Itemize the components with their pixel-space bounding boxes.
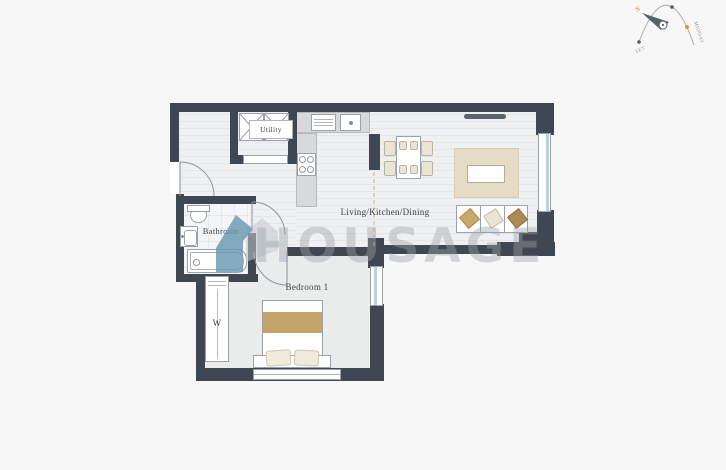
burner-icon <box>299 166 306 173</box>
washbasin <box>180 226 198 247</box>
sink-drainer <box>311 114 336 131</box>
north-label: N <box>633 5 643 15</box>
floorplan-canvas: Utility <box>0 0 726 470</box>
seat-cushion <box>410 165 418 174</box>
burner-icon <box>299 156 306 163</box>
dining-table <box>396 136 421 179</box>
dining-chair <box>421 161 433 176</box>
coffee-table <box>467 165 505 183</box>
wall-top <box>170 103 554 112</box>
utility-door <box>243 155 288 164</box>
headboard <box>253 355 331 368</box>
burner-icon <box>307 156 314 163</box>
sun-dot <box>637 40 641 44</box>
utility-label: Utility <box>260 125 282 134</box>
seat-cushion <box>399 141 407 150</box>
wall-bedroom-left <box>196 278 205 370</box>
utility-label-box: Utility <box>249 120 293 139</box>
seat-cushion <box>410 141 418 150</box>
needle-hub-dot <box>662 24 664 26</box>
entrance-threshold <box>170 162 179 194</box>
duvet <box>263 312 322 333</box>
wardrobe-shelf-line <box>208 285 226 286</box>
pillow <box>265 349 291 367</box>
burner-icon <box>307 166 314 173</box>
wall-hall-left <box>170 103 179 162</box>
wall-kitchen-stub <box>369 134 380 170</box>
watermark-text: HOUSAGE <box>253 219 546 274</box>
drainer-ridges <box>314 117 333 128</box>
kitchen-sink <box>340 114 361 131</box>
wall-corner-topright <box>536 103 554 135</box>
dining-chair <box>384 161 396 176</box>
cooktop-hob <box>297 153 316 176</box>
basin-bowl <box>184 230 197 246</box>
sunset-label: SET <box>635 46 647 55</box>
wall-utility-stub <box>230 155 244 164</box>
wardrobe-label: W <box>213 318 222 328</box>
bathtub-tap-icon <box>193 259 200 266</box>
sun-dot-gold <box>685 25 689 29</box>
tv-unit <box>464 114 506 119</box>
compass-rose: N SET MIDDAY <box>612 0 724 60</box>
bedroom-bottom-window <box>253 369 341 380</box>
bedroom-label: Bedroom 1 <box>286 282 329 292</box>
bedroom-bottom-window-mullion <box>254 374 340 375</box>
dining-chair <box>384 141 396 156</box>
midday-label: MIDDAY <box>692 21 704 45</box>
sun-dot <box>670 5 674 9</box>
living-window <box>538 133 551 212</box>
wardrobe-shelf-line <box>208 281 226 282</box>
wall-bathroom-top <box>176 196 256 204</box>
wall-bedroom-right <box>370 304 384 370</box>
living-window-glass <box>546 134 549 211</box>
sink-drain-dot <box>349 121 353 125</box>
seat-cushion <box>399 165 407 174</box>
basin-tap-dot <box>181 235 184 238</box>
pillow <box>294 349 320 366</box>
dining-chair <box>421 141 433 156</box>
living-label: Living/Kitchen/Dining <box>341 207 430 217</box>
